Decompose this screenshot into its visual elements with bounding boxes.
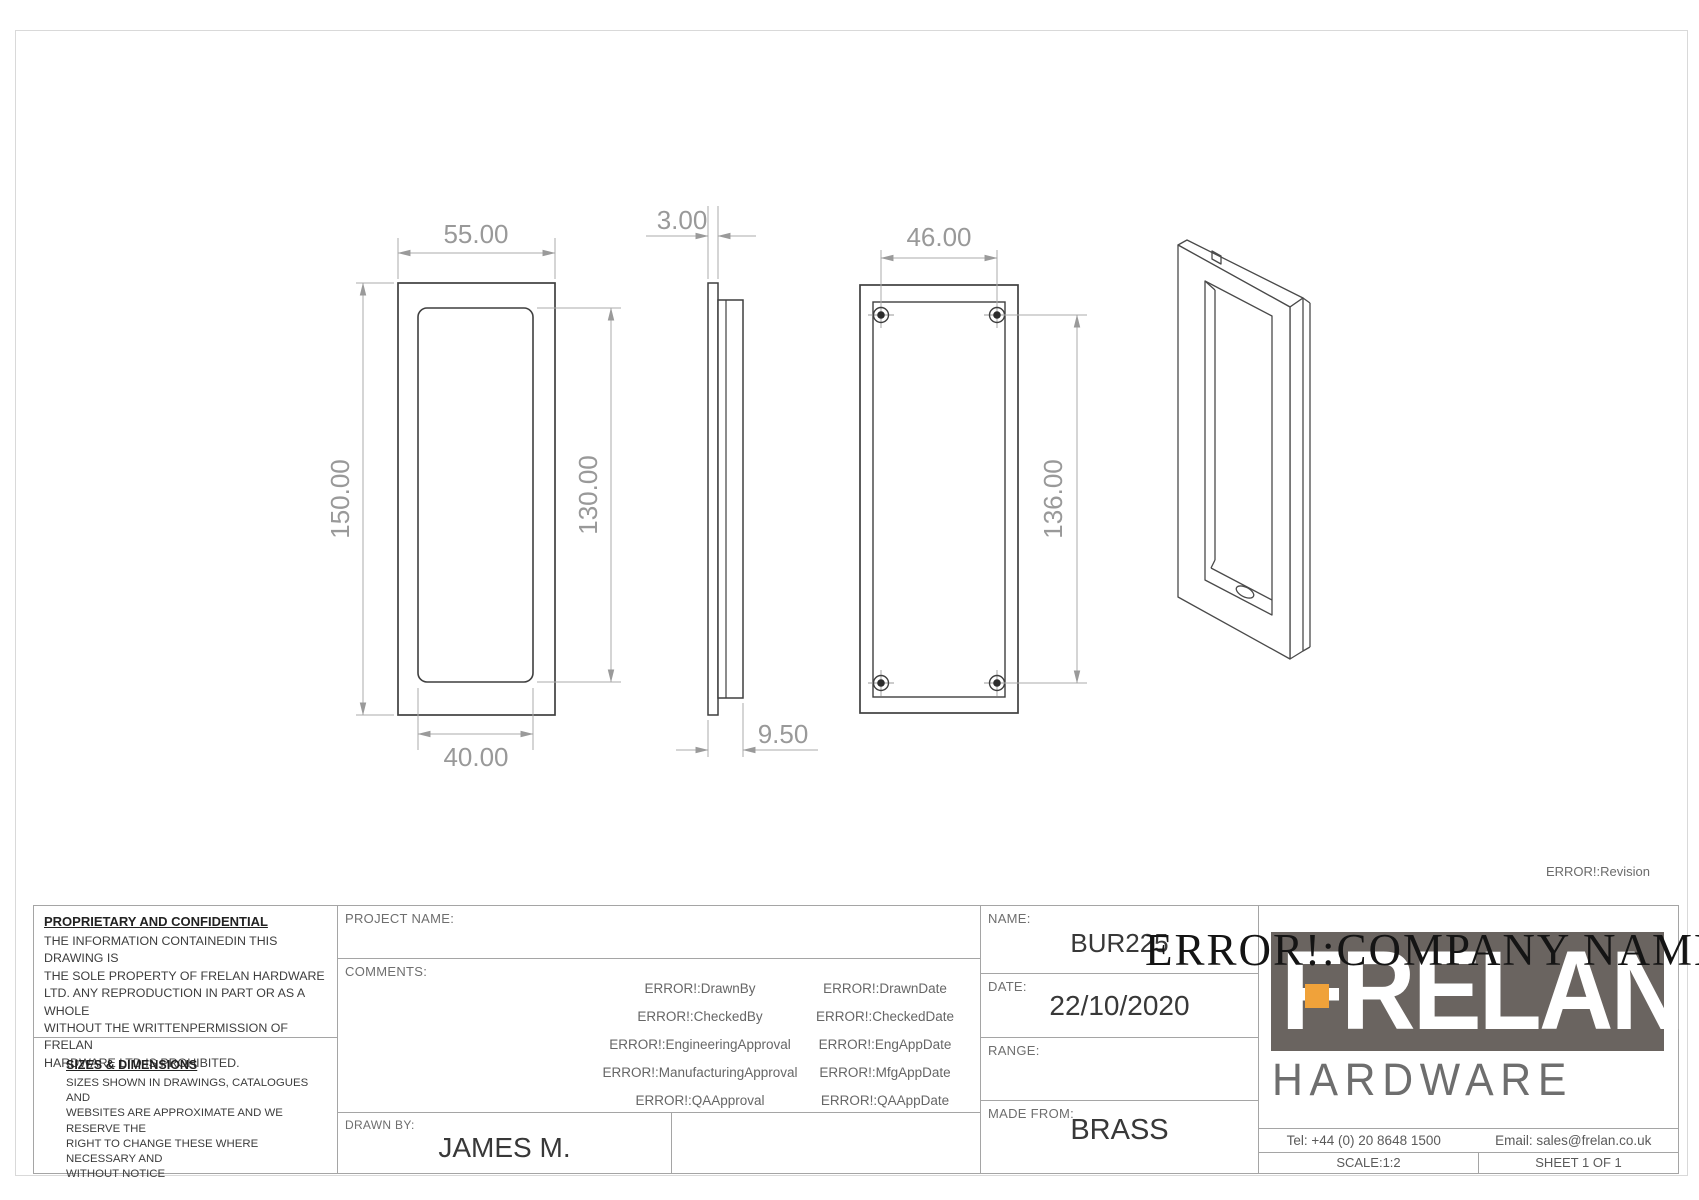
dim-front-inner-height-text: 130.00 bbox=[573, 455, 603, 535]
proprietary-notice: PROPRIETARY AND CONFIDENTIAL THE INFORMA… bbox=[33, 905, 338, 1038]
drawn-by-label: DRAWN BY: bbox=[345, 1118, 415, 1132]
email-value: Email: sales@frelan.co.uk bbox=[1469, 1133, 1679, 1148]
back-view: 46.00 136.00 bbox=[860, 222, 1087, 713]
comments-label: COMMENTS: bbox=[345, 964, 427, 979]
revision-note: ERROR!:Revision bbox=[1546, 864, 1650, 879]
contact-row: Tel: +44 (0) 20 8648 1500 Email: sales@f… bbox=[1258, 1128, 1679, 1153]
engineering-drawing-sheet: 55.00 150.00 130.00 40.00 bbox=[0, 0, 1699, 1200]
dim-front-height bbox=[356, 283, 394, 715]
sizes-dimensions-notice: SIZES & DIMENSIONS SIZES SHOWN IN DRAWIN… bbox=[33, 1037, 338, 1174]
name-label: NAME: bbox=[988, 911, 1031, 926]
dim-back-hole-span-width-text: 46.00 bbox=[906, 222, 971, 252]
drawn-by-value: JAMES M. bbox=[337, 1132, 672, 1164]
made-from-value: BRASS bbox=[980, 1114, 1259, 1147]
dim-front-width-text: 55.00 bbox=[443, 219, 508, 249]
front-view: 55.00 150.00 130.00 40.00 bbox=[325, 219, 621, 772]
range-cell: RANGE: bbox=[980, 1037, 1259, 1101]
sheet-cell: SHEET 1 OF 1 bbox=[1478, 1152, 1679, 1174]
tel-value: Tel: +44 (0) 20 8648 1500 bbox=[1259, 1133, 1469, 1148]
project-name-label: PROJECT NAME: bbox=[345, 911, 454, 926]
drawn-by-empty-cell bbox=[671, 1112, 981, 1174]
dim-side-thickness-text: 3.00 bbox=[657, 205, 708, 235]
dim-front-inner-width-text: 40.00 bbox=[443, 742, 508, 772]
dim-back-hole-span-height-text: 136.00 bbox=[1038, 459, 1068, 539]
frelan-logo-subtext: HARDWARE bbox=[1272, 1054, 1573, 1106]
scale-cell: SCALE:1:2 bbox=[1258, 1152, 1479, 1174]
project-name-cell: PROJECT NAME: bbox=[337, 905, 981, 959]
dim-side-depth-text: 9.50 bbox=[758, 719, 809, 749]
proprietary-heading: PROPRIETARY AND CONFIDENTIAL bbox=[44, 914, 327, 929]
side-view: 3.00 9.50 bbox=[646, 205, 818, 757]
range-label: RANGE: bbox=[988, 1043, 1040, 1058]
dim-front-height-text: 150.00 bbox=[325, 459, 355, 539]
frelan-logo-orange-square bbox=[1305, 984, 1329, 1008]
isometric-view bbox=[1178, 240, 1310, 659]
company-name-error-overlay: ERROR!:COMPANY NAME bbox=[1145, 924, 1699, 976]
sizes-heading: SIZES & DIMENSIONS bbox=[66, 1058, 331, 1072]
date-value: 22/10/2020 bbox=[980, 990, 1259, 1022]
